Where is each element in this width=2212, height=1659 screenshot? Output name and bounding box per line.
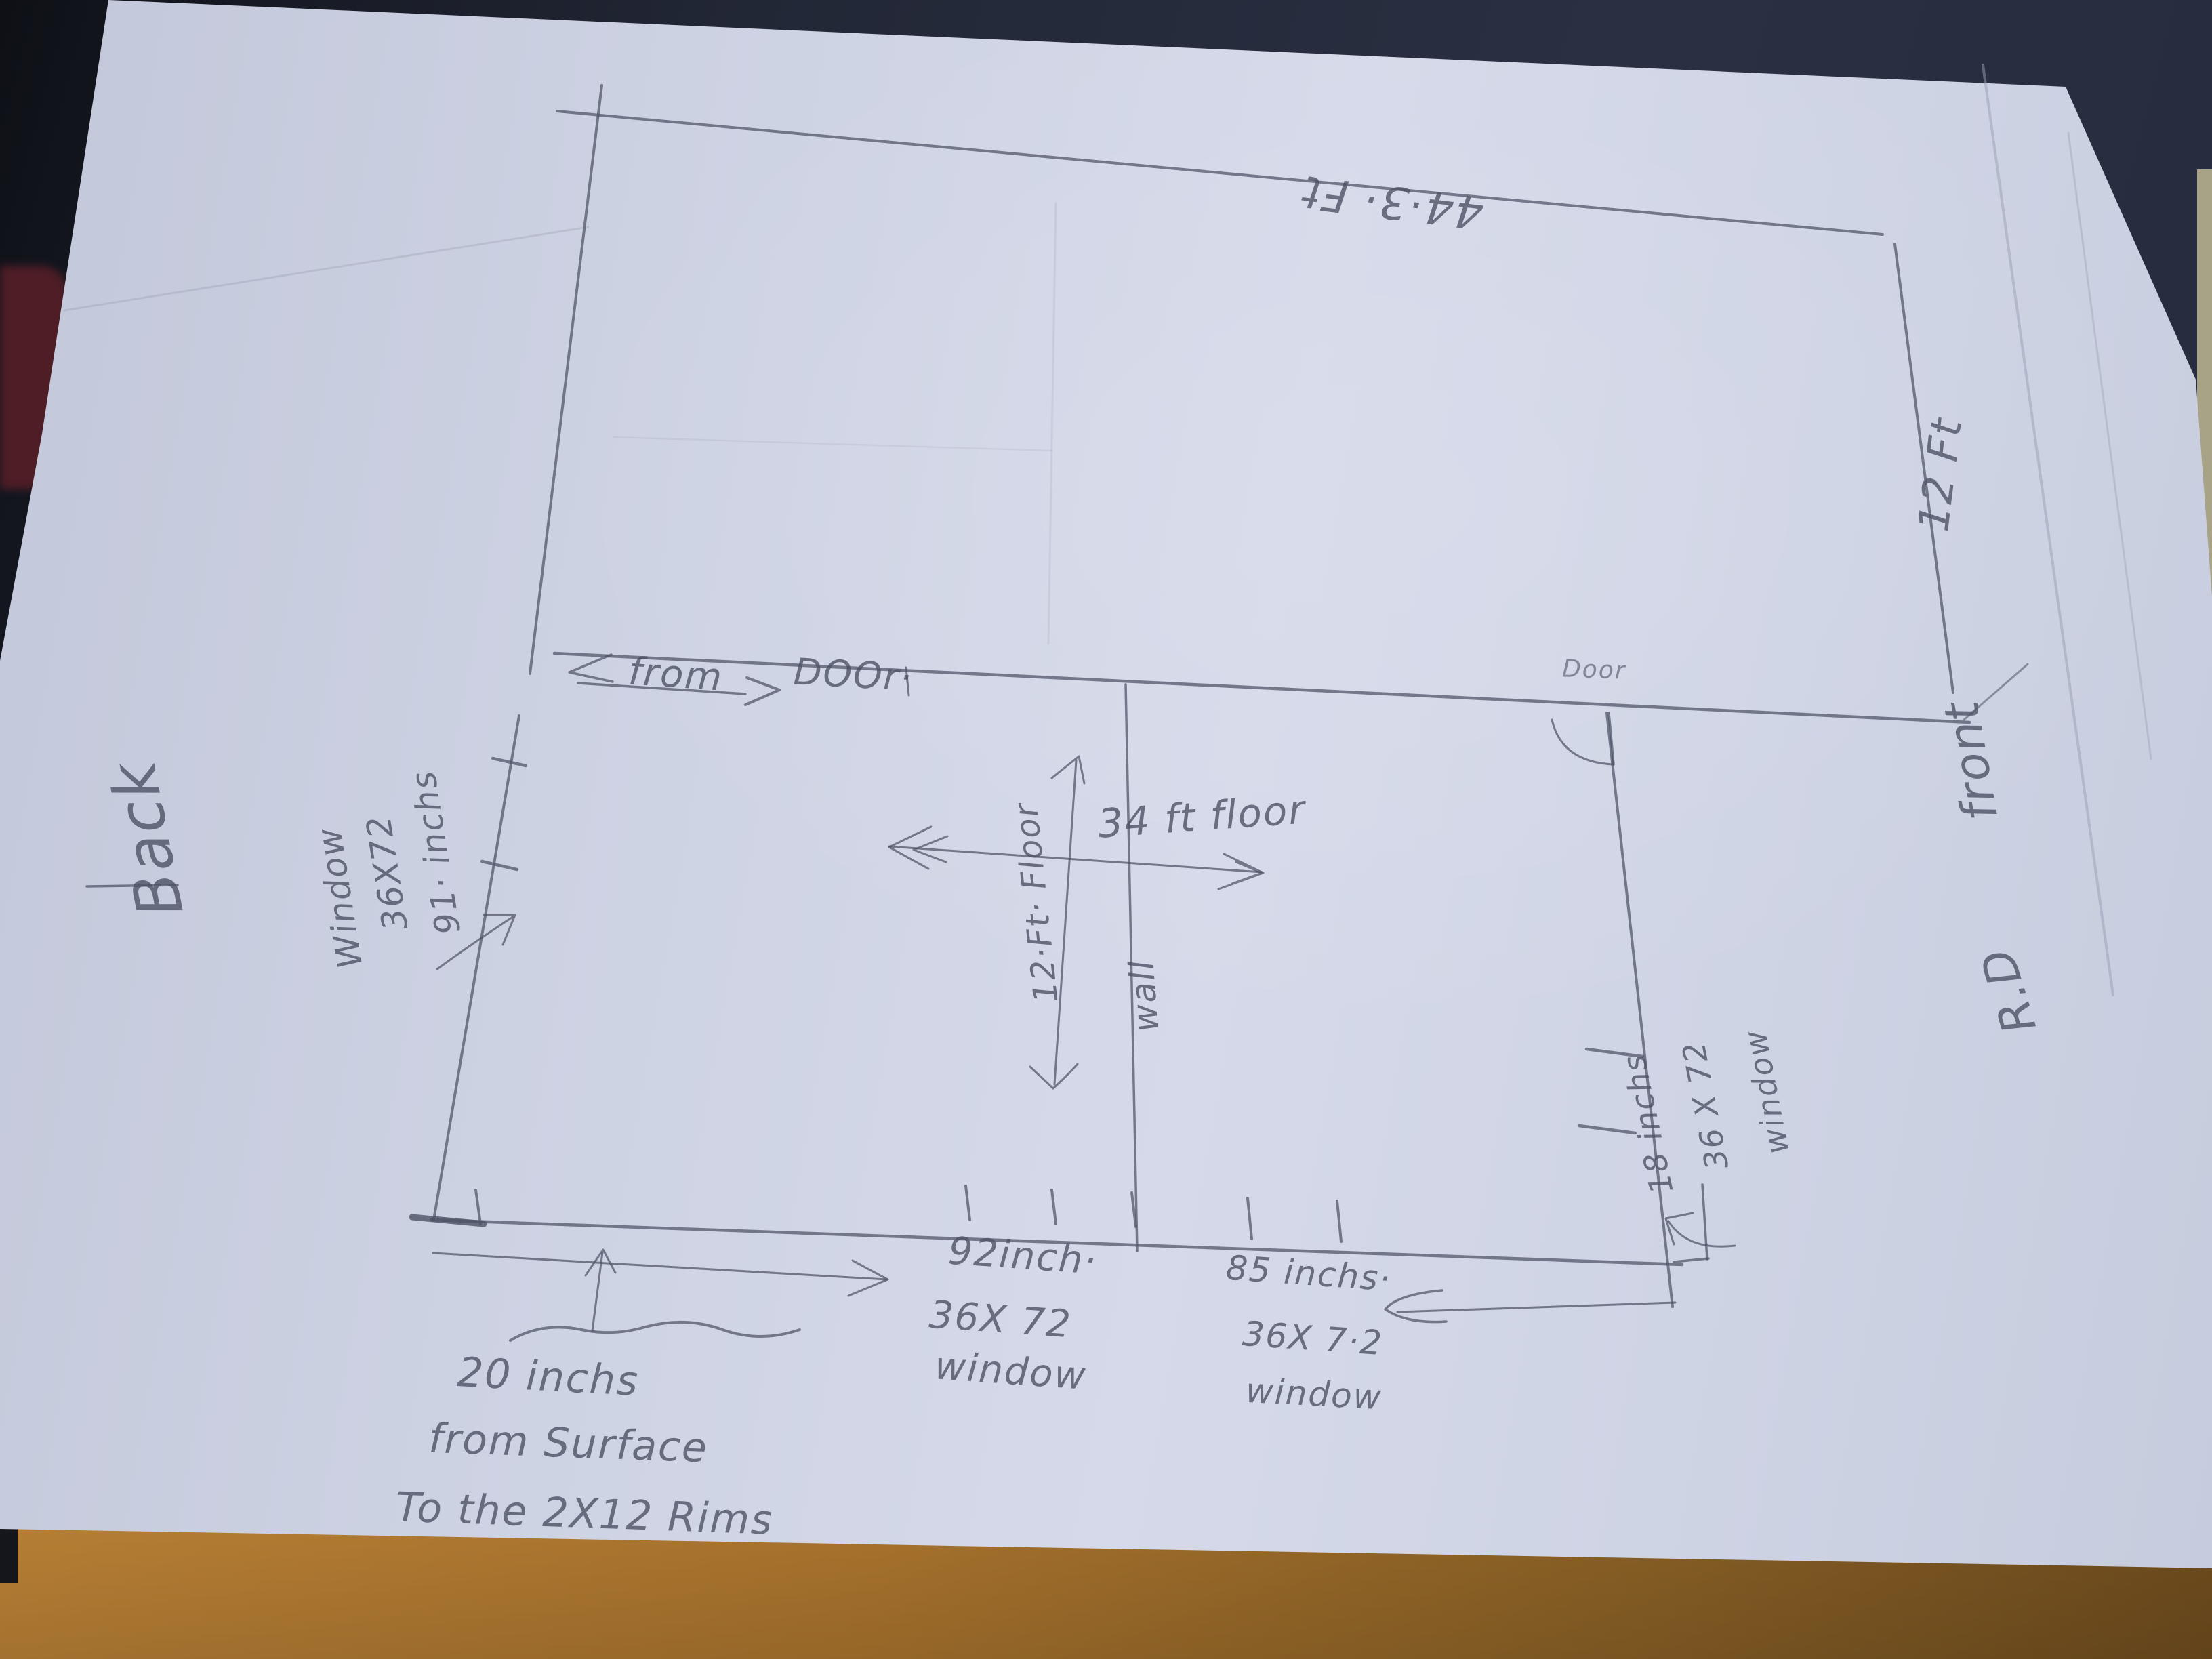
ghost-interior-vert — [1048, 203, 1056, 644]
jut-bottom — [1674, 1258, 1708, 1262]
photo-scene: 44·3· Ft12 FtfromDOOr·Door91· inchs36X72… — [0, 0, 2212, 1659]
bottom-tick-3 — [1052, 1190, 1056, 1224]
left-win-tick-bottom — [482, 861, 517, 869]
bottom-window2-dim: 85 inchs· — [1225, 1248, 1393, 1299]
bottom-window2-word: window — [1245, 1371, 1383, 1417]
front-wall — [554, 653, 1969, 722]
bottom-window1-size: 36X 72 — [928, 1293, 1073, 1347]
door-label: Door — [1561, 655, 1626, 684]
right-window-dim: 18 inchs — [1615, 1050, 1680, 1197]
right-window-arrow — [1666, 1213, 1735, 1246]
left-window-dim: 91· inchs — [403, 768, 468, 937]
bottom-dim-line-left — [433, 1253, 886, 1279]
horiz-dim-line — [889, 846, 1262, 872]
ghost-interior-horiz — [613, 437, 1052, 451]
surface-squiggle — [510, 1322, 800, 1340]
wall-label: wall — [1122, 958, 1166, 1033]
bottom-tick-2 — [966, 1186, 970, 1220]
bottom-window1-word: window — [933, 1344, 1088, 1398]
bottom-tick-1 — [476, 1190, 480, 1224]
right-win-tick-bottom — [1579, 1126, 1635, 1133]
note-line3: To the 2X12 Rims — [395, 1483, 774, 1544]
bottom-tick-5 — [1248, 1198, 1252, 1239]
dim-top-44ft: 44·3· Ft — [1299, 165, 1486, 239]
right-window-size: 36 X 72 — [1675, 1038, 1736, 1173]
from-left-arrowhead — [569, 655, 613, 682]
left-wall-lower — [434, 716, 519, 1220]
front-label: front — [1933, 696, 2009, 825]
from-label: from — [627, 649, 724, 700]
right-window-word: window — [1736, 1026, 1797, 1157]
bottom-window1-dim: 92inch· — [947, 1229, 1099, 1283]
bottom-window2-size: 36X 7·2 — [1242, 1314, 1385, 1363]
left-window-size: 36X72 — [359, 812, 415, 933]
left-win-tick-top — [493, 758, 526, 766]
vert-dim-line — [1054, 760, 1076, 1084]
floor-plan-sketch: 44·3· Ft12 FtfromDOOr·Door91· inchs36X72… — [0, 0, 2212, 1659]
left-wall-top — [530, 85, 602, 674]
note-line2: from Surface — [428, 1415, 709, 1472]
back-label: Back — [96, 754, 198, 923]
left-window-word: Window — [309, 824, 370, 971]
door-word: DOOr· — [792, 650, 914, 699]
floor-dim-vertical: 12·Ft· Floor — [1007, 800, 1066, 1004]
top-wall — [557, 111, 1883, 234]
bottom-dim-right-curl-arrow — [1385, 1290, 1446, 1322]
bottom-tick-6 — [1337, 1201, 1341, 1242]
rd-label: R.D — [1971, 941, 2047, 1040]
greater-than-mark — [745, 678, 779, 705]
paper-stack-edge-a — [1983, 65, 2113, 995]
bottom-wall-heavy — [412, 1217, 484, 1224]
door-swing-arc — [1552, 720, 1613, 764]
note-line1: 20 inchs — [456, 1349, 640, 1406]
crease-upper-left — [64, 227, 588, 310]
bottom-dim-line-right — [1397, 1303, 1675, 1312]
vert-dim-top-arrowhead — [1052, 756, 1084, 783]
right-wall-lower — [1607, 713, 1673, 1307]
paper-stack-edge-b — [2068, 133, 2151, 759]
jut-vertical — [1702, 1185, 1707, 1259]
